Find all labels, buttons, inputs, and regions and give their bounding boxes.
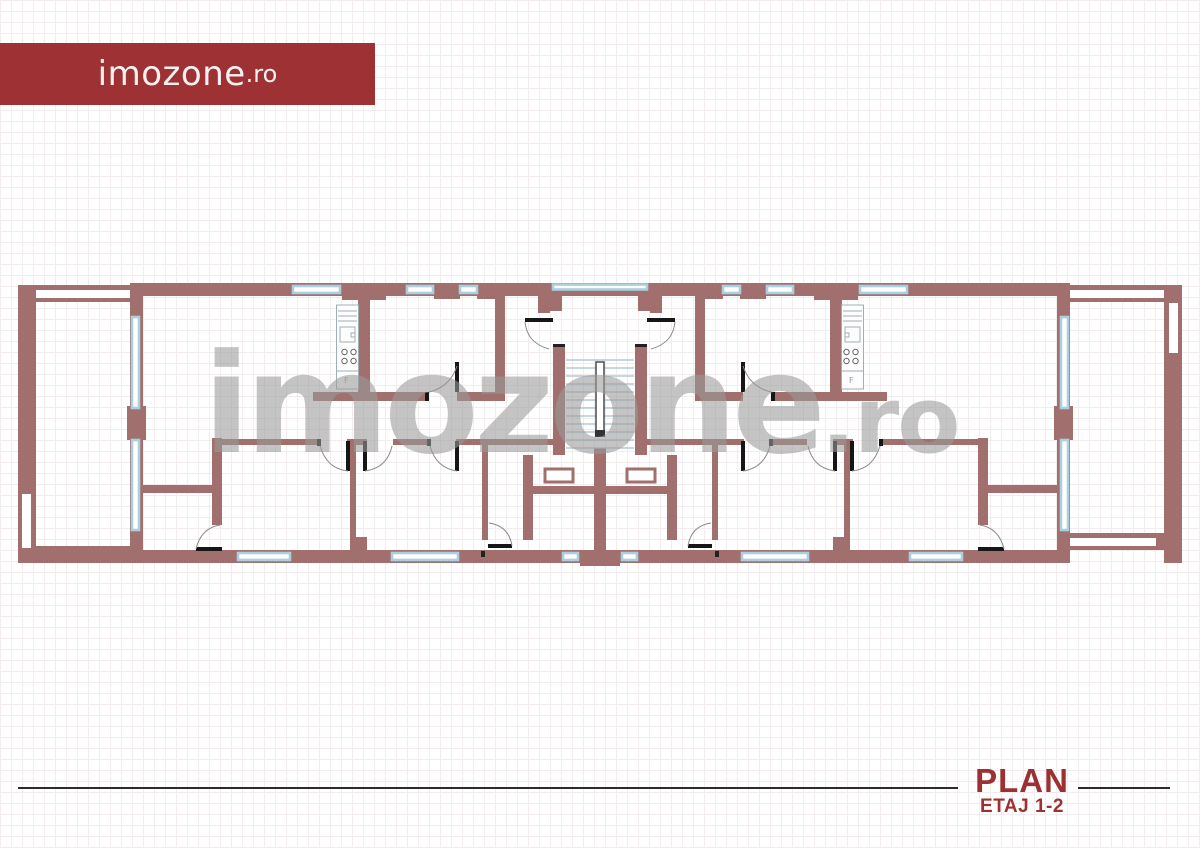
door-entry-right	[647, 318, 675, 349]
left-balcony	[18, 285, 143, 563]
door-bath-outer-left	[196, 525, 222, 551]
title-rule-left	[18, 787, 958, 789]
stair-divider-cap	[595, 430, 605, 437]
door-bedroom1-left	[317, 439, 350, 471]
title-block: PLAN ETAJ 1-2	[972, 764, 1072, 817]
title-rule-right	[1078, 787, 1170, 789]
door-bedroom1-right	[850, 439, 883, 471]
plan-title: PLAN	[972, 764, 1072, 797]
right-balcony	[1057, 285, 1182, 563]
floor-plan: F F	[0, 0, 1200, 848]
fridge-label-right: F	[849, 376, 854, 385]
door-bath-outer-right	[978, 525, 1004, 551]
stair-divider	[596, 362, 604, 434]
door-bath-inner-right	[688, 523, 712, 548]
kitchen-left: F	[337, 305, 359, 389]
plan-subtitle: ETAJ 1-2	[972, 797, 1072, 817]
door-corridor-left	[427, 439, 459, 471]
door-bedroom2-left	[363, 441, 392, 471]
fridge-label-left: F	[344, 376, 349, 385]
door-entry-left	[525, 318, 553, 349]
door-hall-left	[425, 362, 459, 401]
kitchen-right: F	[842, 305, 864, 389]
staircase	[566, 360, 634, 448]
door-bath-inner-left	[488, 523, 512, 548]
door-corridor-right	[741, 439, 773, 471]
door-bedroom2-right	[808, 441, 837, 471]
door-hall-right	[741, 362, 775, 401]
